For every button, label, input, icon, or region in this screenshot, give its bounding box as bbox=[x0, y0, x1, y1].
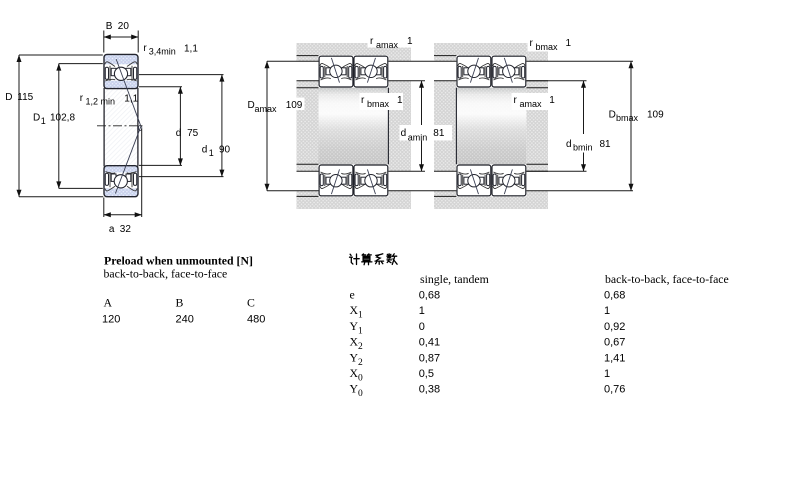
svg-text:amax: amax bbox=[255, 104, 278, 114]
svg-text:1: 1 bbox=[397, 95, 403, 106]
svg-text:amax: amax bbox=[520, 99, 543, 109]
svg-text:1: 1 bbox=[407, 36, 413, 47]
svg-text:D: D bbox=[5, 92, 12, 103]
svg-text:d: d bbox=[566, 139, 572, 150]
svg-text:amin: amin bbox=[408, 132, 428, 142]
svg-text:d: d bbox=[176, 128, 182, 139]
svg-text:2: 2 bbox=[358, 342, 363, 352]
svg-text:back-to-back, face-to-face: back-to-back, face-to-face bbox=[605, 272, 729, 286]
svg-text:C: C bbox=[247, 296, 255, 310]
svg-text:2: 2 bbox=[358, 358, 363, 368]
svg-text:0,76: 0,76 bbox=[604, 384, 625, 396]
svg-text:1: 1 bbox=[549, 95, 555, 106]
svg-text:D: D bbox=[609, 110, 616, 121]
svg-text:e: e bbox=[350, 288, 355, 302]
svg-text:A: A bbox=[104, 296, 113, 310]
svg-text:0,68: 0,68 bbox=[419, 290, 440, 302]
svg-text:a: a bbox=[109, 224, 115, 235]
svg-text:1,1: 1,1 bbox=[184, 43, 198, 54]
svg-text:120: 120 bbox=[102, 314, 120, 326]
svg-text:81: 81 bbox=[433, 128, 445, 139]
svg-text:back-to-back, face-to-face: back-to-back, face-to-face bbox=[104, 267, 228, 281]
svg-text:1: 1 bbox=[566, 38, 572, 49]
svg-text:1,2 min: 1,2 min bbox=[86, 97, 116, 107]
svg-text:102,8: 102,8 bbox=[50, 113, 75, 124]
svg-text:480: 480 bbox=[247, 314, 265, 326]
svg-text:0,68: 0,68 bbox=[604, 290, 625, 302]
svg-text:0,5: 0,5 bbox=[419, 368, 434, 380]
svg-text:1: 1 bbox=[419, 305, 425, 317]
svg-text:20: 20 bbox=[118, 21, 130, 32]
svg-text:115: 115 bbox=[17, 92, 33, 103]
svg-text:0,67: 0,67 bbox=[604, 337, 625, 349]
svg-text:0: 0 bbox=[358, 374, 363, 384]
svg-text:1: 1 bbox=[209, 148, 214, 158]
svg-text:81: 81 bbox=[600, 139, 612, 150]
svg-text:d: d bbox=[202, 144, 208, 155]
svg-text:0,92: 0,92 bbox=[604, 321, 625, 333]
svg-text:1: 1 bbox=[358, 311, 363, 321]
svg-text:bmax: bmax bbox=[536, 42, 559, 52]
svg-text:32: 32 bbox=[120, 224, 132, 235]
svg-text:amax: amax bbox=[376, 40, 399, 50]
svg-text:0,41: 0,41 bbox=[419, 337, 440, 349]
svg-text:B: B bbox=[106, 21, 113, 32]
svg-text:1: 1 bbox=[604, 305, 610, 317]
svg-text:single, tandem: single, tandem bbox=[420, 272, 489, 286]
svg-text:0,38: 0,38 bbox=[419, 384, 440, 396]
svg-text:90: 90 bbox=[219, 144, 231, 155]
svg-text:109: 109 bbox=[286, 100, 303, 111]
svg-text:bmin: bmin bbox=[573, 143, 593, 153]
svg-text:109: 109 bbox=[647, 110, 664, 121]
svg-text:Preload when unmounted [N]: Preload when unmounted [N] bbox=[104, 254, 253, 268]
svg-text:D: D bbox=[33, 113, 40, 124]
svg-text:240: 240 bbox=[176, 314, 194, 326]
svg-text:d: d bbox=[401, 128, 407, 139]
svg-text:1,41: 1,41 bbox=[604, 352, 625, 364]
svg-text:1: 1 bbox=[41, 116, 46, 126]
svg-text:0: 0 bbox=[358, 389, 363, 399]
svg-text:bmax: bmax bbox=[616, 113, 639, 123]
svg-text:3,4min: 3,4min bbox=[149, 47, 176, 57]
svg-text:0,87: 0,87 bbox=[419, 352, 440, 364]
svg-text:75: 75 bbox=[187, 128, 199, 139]
svg-text:r: r bbox=[80, 93, 84, 104]
svg-text:bmax: bmax bbox=[367, 99, 390, 109]
svg-text:1: 1 bbox=[358, 326, 363, 336]
svg-text:0: 0 bbox=[419, 321, 425, 333]
svg-text:r: r bbox=[143, 43, 147, 54]
svg-text:B: B bbox=[176, 296, 184, 310]
svg-text:1: 1 bbox=[604, 368, 610, 380]
svg-text:1,1: 1,1 bbox=[124, 93, 138, 104]
